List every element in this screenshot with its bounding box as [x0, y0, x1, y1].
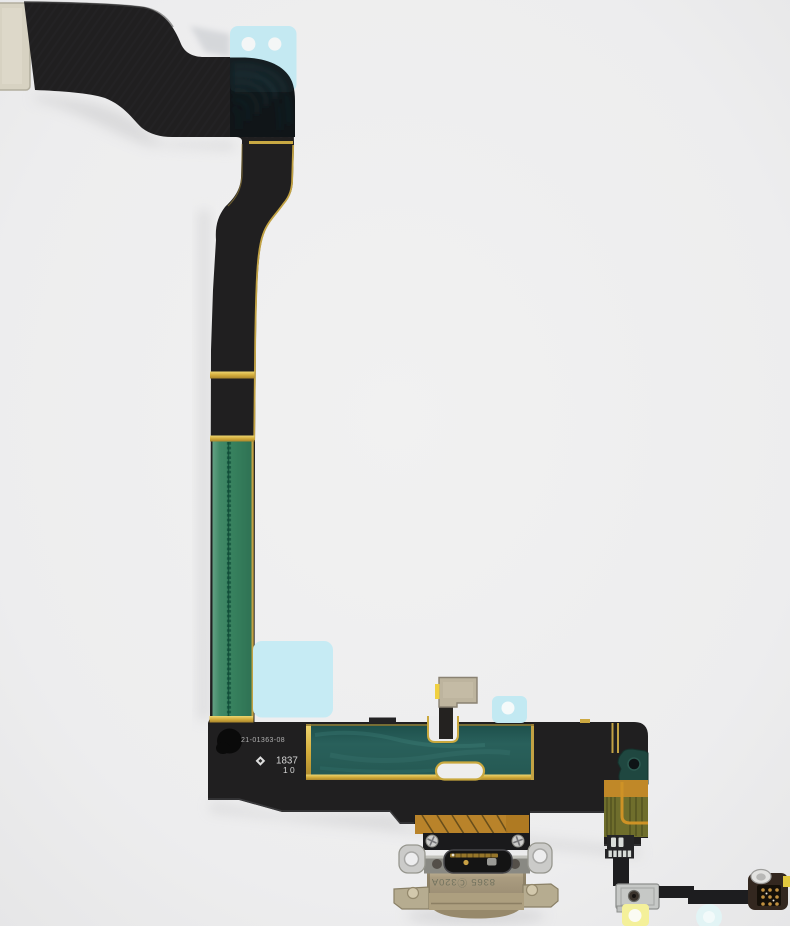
svg-text:1 0: 1 0: [283, 765, 295, 775]
svg-text:8365 Ⓒ320A: 8365 Ⓒ320A: [431, 876, 495, 887]
svg-text:21-01363-08: 21-01363-08: [241, 737, 285, 744]
